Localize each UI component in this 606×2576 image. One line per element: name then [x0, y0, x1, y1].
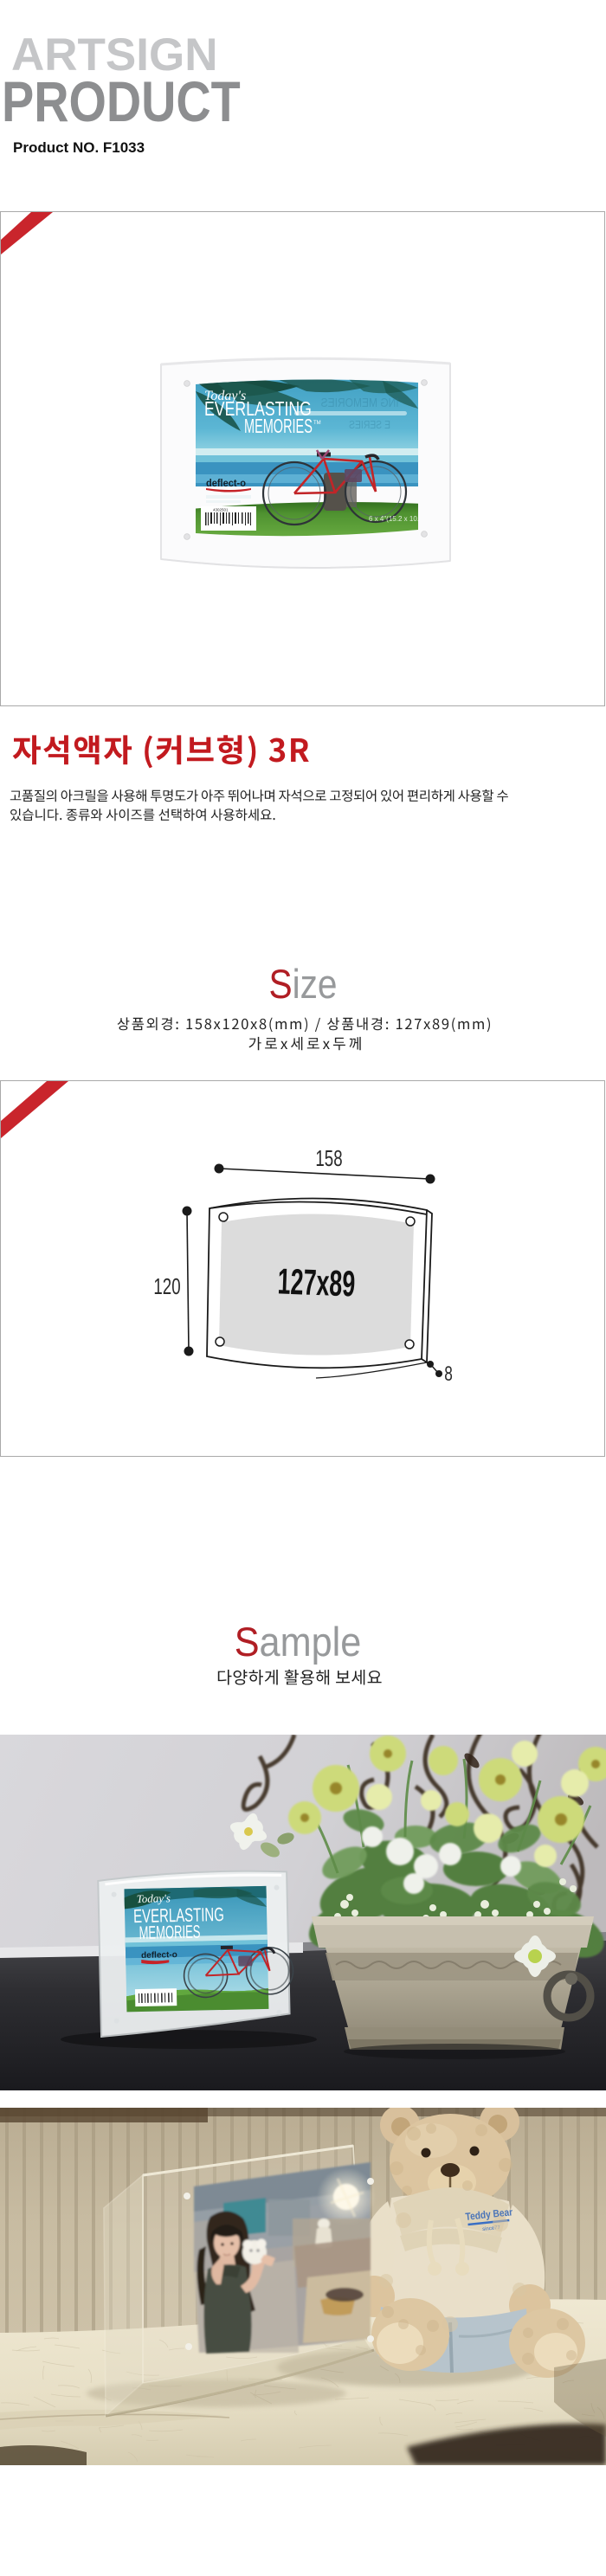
- svg-text:E SERIES: E SERIES: [349, 419, 390, 431]
- svg-text:158: 158: [315, 1145, 342, 1171]
- svg-text:TM: TM: [313, 421, 321, 426]
- svg-text:4302501: 4302501: [213, 508, 229, 512]
- svg-text:ING MEMORIES: ING MEMORIES: [321, 396, 399, 410]
- svg-text:Today's: Today's: [137, 1891, 171, 1905]
- svg-text:MEMORIES: MEMORIES: [139, 1921, 200, 1943]
- svg-text:deflect-o: deflect-o: [141, 1950, 177, 1961]
- svg-text:MEMORIES: MEMORIES: [244, 416, 313, 438]
- svg-text:120: 120: [153, 1273, 180, 1299]
- svg-text:8: 8: [444, 1362, 453, 1385]
- svg-text:127x89: 127x89: [277, 1262, 356, 1305]
- svg-text:deflect-o: deflect-o: [206, 479, 246, 489]
